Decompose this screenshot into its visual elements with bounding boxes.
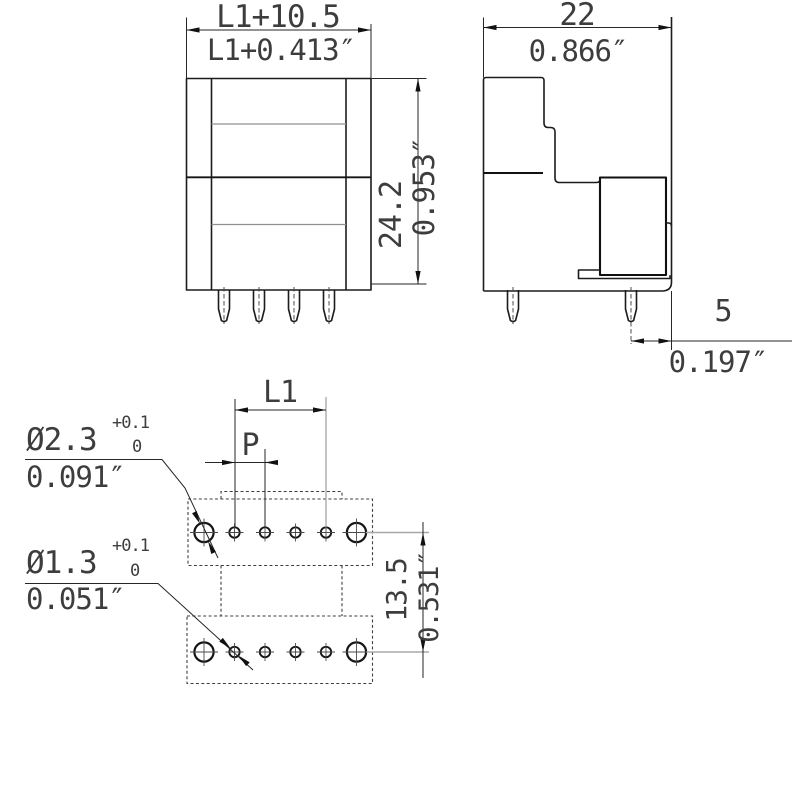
hole-a-inch: 0.091″: [26, 460, 125, 494]
hole-a-tolerance-lower: 0: [132, 437, 142, 457]
arrowhead: [235, 407, 248, 412]
arrowhead: [415, 271, 420, 284]
hole-b-tolerance-lower: 0: [130, 561, 140, 581]
dim-front-width-mm: L1+10.5: [216, 0, 340, 35]
arrowhead: [219, 638, 230, 649]
arrowhead: [208, 541, 216, 554]
side-latch-block: [600, 178, 666, 276]
hole-crosshair: [190, 519, 218, 547]
hole-crosshair: [190, 638, 218, 666]
dim-pitch: P: [205, 428, 278, 528]
hole-b-tolerance-upper: +0.1: [112, 536, 150, 556]
dim-pin-offset: 5 0.197″: [631, 291, 792, 379]
dim-front-width-inch: L1+0.413″: [207, 33, 355, 67]
arrowhead: [484, 25, 497, 30]
arrowhead: [631, 338, 644, 343]
arrowhead: [659, 338, 672, 343]
arrowhead: [358, 27, 371, 32]
footprint-tab-row1: [221, 492, 342, 500]
hole-crosshair: [343, 638, 371, 666]
dim-row-spacing-inch: 0.531″: [414, 551, 445, 643]
technical-drawing-page: L1+10.5 L1+0.413″ 24.2 0.953″ 22 0.866″: [0, 0, 800, 800]
hole-crosshair: [317, 643, 335, 661]
hole-a-tolerance-upper: +0.1: [112, 413, 150, 433]
dim-row-spacing-mm: 13.5: [380, 558, 413, 621]
front-body-outline: [187, 79, 372, 291]
dim-side-width-mm: 22: [559, 0, 594, 33]
dim-front-height: 24.2 0.953″: [371, 79, 441, 285]
arrowhead: [187, 27, 200, 32]
hole-crosshair: [256, 643, 274, 661]
drilling-plan: L1 P 13.5 0.531″ Ø2.3 +0.1 0 0.091″: [25, 375, 445, 684]
side-body-outline: [484, 78, 601, 292]
arrowhead: [415, 79, 420, 92]
dim-l1-label: L1: [263, 375, 297, 410]
hole-b-diameter: Ø1.3: [26, 545, 97, 581]
hole-row-1: [190, 519, 371, 547]
dim-pitch-label: P: [241, 428, 258, 463]
dim-front-height-mm: 24.2: [374, 181, 409, 249]
front-view: [187, 79, 372, 325]
callout-hole-b: Ø1.3 +0.1 0 0.051″: [25, 536, 253, 670]
arrowhead: [222, 460, 235, 465]
arrowhead: [313, 407, 326, 412]
hole-b-inch: 0.051″: [26, 582, 125, 616]
dim-side-width: 22 0.866″: [484, 0, 672, 78]
dim-front-height-inch: 0.953″: [407, 138, 441, 237]
hole-a-diameter: Ø2.3: [26, 422, 97, 458]
dim-pin-offset-mm: 5: [714, 294, 731, 329]
hole-row-2: [190, 638, 371, 666]
dim-front-width: L1+10.5 L1+0.413″: [187, 0, 372, 79]
footprint-outline-row2: [187, 616, 373, 684]
hole-crosshair: [287, 643, 305, 661]
dim-side-width-inch: 0.866″: [529, 34, 628, 68]
dimension-drawing: L1+10.5 L1+0.413″ 24.2 0.953″ 22 0.866″: [0, 0, 800, 800]
arrowhead: [420, 533, 425, 546]
dim-row-spacing: 13.5 0.531″: [366, 522, 445, 678]
arrowhead: [265, 460, 278, 465]
dim-pin-offset-inch: 0.197″: [669, 345, 768, 379]
arrowhead: [238, 656, 249, 667]
hole-crosshair: [287, 524, 305, 542]
arrowhead: [659, 25, 672, 30]
